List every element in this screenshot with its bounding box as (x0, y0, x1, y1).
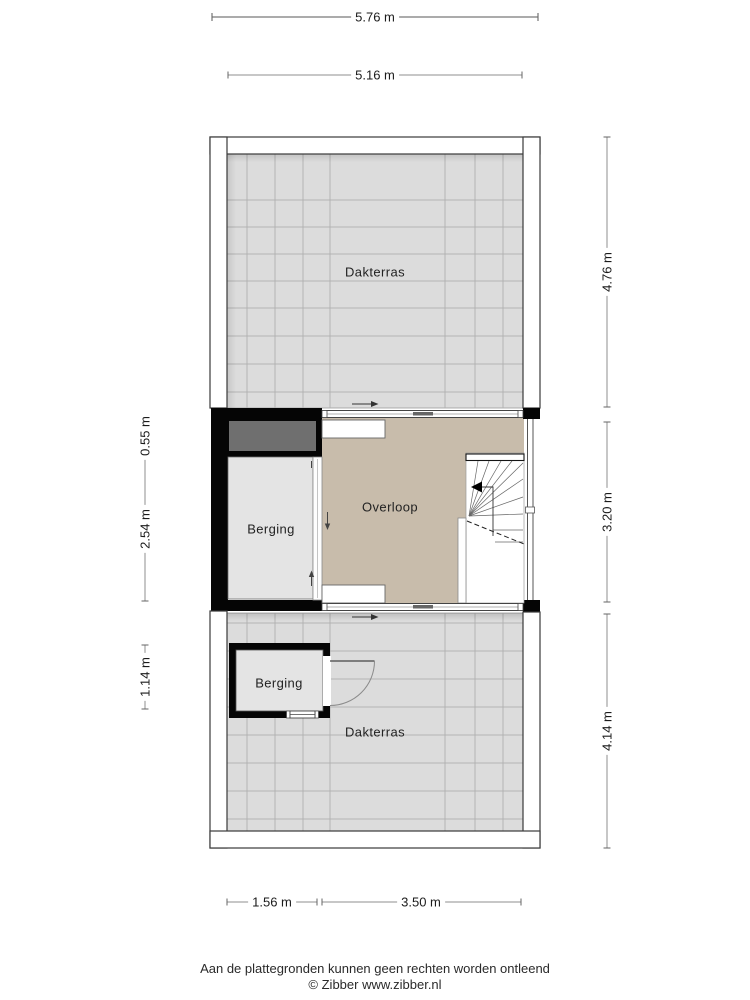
outer-wall-left-top (210, 137, 227, 408)
outer-wall-right-bottom (523, 612, 540, 848)
floorplan-page: 5.76 m 5.16 m 4.76 m 3.20 m 4.14 m 0.55 … (0, 0, 750, 1000)
room-label-berging-middle: Berging (247, 522, 295, 537)
outer-wall-right-top (523, 137, 540, 408)
room-label-dakterras-bottom: Dakterras (345, 725, 405, 740)
outer-wall-bottom (210, 831, 540, 848)
sliding-door-panel (413, 412, 433, 416)
cupboard-top (322, 420, 385, 438)
dimension-bottom-left: 1.56 m (248, 895, 296, 910)
black-wall-stub-top-right (523, 408, 540, 419)
sliding-door-track-top (322, 410, 523, 418)
dimension-left-bottom: 1.14 m (138, 653, 153, 701)
room-label-overloop: Overloop (362, 500, 418, 515)
dimension-right-top: 4.76 m (600, 248, 615, 296)
stair-side-wall (458, 518, 466, 603)
sliding-door-track-bottom (322, 604, 523, 612)
black-wall-bottom-bar (211, 600, 322, 611)
dimension-right-middle: 3.20 m (600, 488, 615, 536)
cupboard-bottom (322, 585, 385, 603)
footer-copyright: © Zibber www.zibber.nl (0, 977, 750, 993)
dimension-top-inner: 5.16 m (351, 68, 399, 83)
dimension-top-outer: 5.76 m (351, 10, 399, 25)
outer-wall-left-bottom (210, 611, 227, 848)
door-opening (323, 656, 331, 706)
room-label-dakterras-top: Dakterras (345, 265, 405, 280)
berging-window (287, 711, 319, 718)
dimension-left-middle: 2.54 m (138, 505, 153, 553)
footer-disclaimer: Aan de plattegronden kunnen geen rechten… (0, 961, 750, 977)
staircase (458, 453, 524, 603)
dimension-right-bottom: 4.14 m (600, 707, 615, 755)
window-right-middle (526, 419, 535, 600)
room-label-berging-bottom: Berging (255, 676, 303, 691)
sliding-door-panel (413, 605, 433, 609)
roof-edge-strip (229, 421, 316, 451)
black-wall-stub-bottom-right (523, 600, 540, 612)
dimension-left-top: 0.55 m (138, 412, 153, 460)
outer-wall-top (210, 137, 540, 154)
dimension-bottom-right: 3.50 m (397, 895, 445, 910)
